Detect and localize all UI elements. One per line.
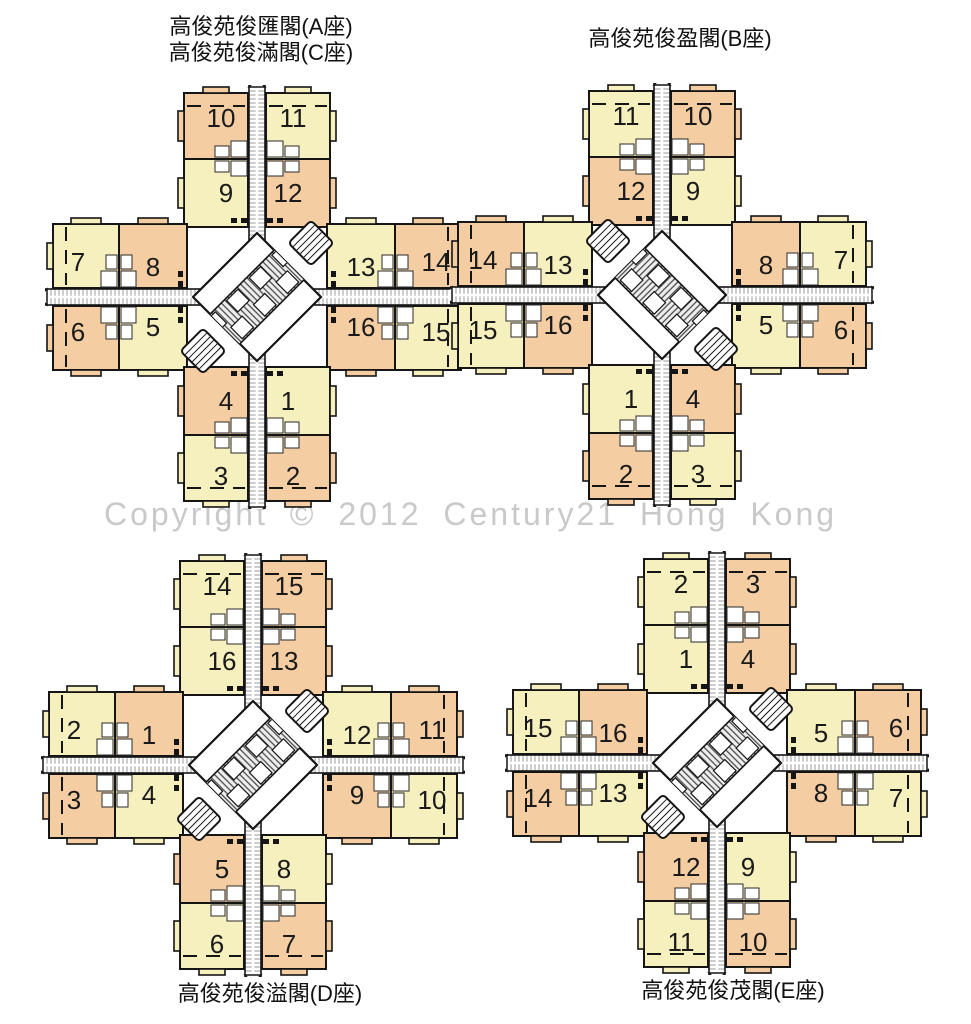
plan-b-unit-14-label: 14 — [469, 245, 498, 275]
plan-d-unit-5-label: 5 — [215, 854, 229, 884]
plan-ac-unit-9-label: 9 — [219, 178, 233, 208]
corridor-end-wedge — [709, 551, 725, 553]
corridor-end-wedge — [245, 553, 261, 555]
plan-e-unit-3-label: 3 — [746, 569, 760, 599]
plan-ac-unit-8-label: 8 — [146, 252, 160, 282]
plan-d-unit-12-label: 12 — [343, 720, 372, 750]
plan-b-unit-1-label: 1 — [624, 384, 638, 414]
corridor-end-wedge — [709, 973, 725, 975]
corridor-end-wedge — [249, 507, 265, 509]
plan-b-unit-12-label: 12 — [617, 176, 646, 206]
floor-plan-b: 12911101316141585761423 — [450, 83, 874, 507]
plan-ac-core — [180, 220, 333, 373]
plan-d-unit-8-label: 8 — [277, 854, 291, 884]
plan-e-unit-12-label: 12 — [672, 852, 701, 882]
plan-b-core — [585, 218, 738, 371]
plan-b-unit-5-label: 5 — [759, 310, 773, 340]
title-tower-d: 高俊苑俊溢閣(D座) — [120, 981, 420, 1007]
plan-b-unit-2-label: 2 — [619, 459, 633, 489]
plan-ac-unit-10-label: 10 — [207, 103, 236, 133]
plan-b-unit-13-label: 13 — [544, 250, 573, 280]
plan-b-unit-3-label: 3 — [691, 459, 705, 489]
plan-b-unit-9-label: 9 — [686, 176, 700, 206]
plan-b-unit-4-label: 4 — [686, 384, 700, 414]
corridor-end-wedge — [245, 975, 261, 977]
plan-e-core — [640, 686, 793, 839]
plan-d-unit-9-label: 9 — [350, 780, 364, 810]
plan-d-unit-11-label: 11 — [419, 715, 446, 745]
plan-ac-unit-12-label: 12 — [274, 178, 303, 208]
plan-d-unit-16-label: 16 — [208, 646, 237, 676]
plan-ac-unit-13-label: 13 — [347, 252, 376, 282]
plan-d-unit-4-label: 4 — [142, 780, 156, 810]
corridor-end-wedge — [927, 755, 929, 771]
plan-e-unit-5-label: 5 — [814, 718, 828, 748]
plan-e-unit-15-label: 15 — [524, 713, 553, 743]
plan-e-unit-6-label: 6 — [889, 713, 903, 743]
plan-d-unit-10-label: 10 — [418, 785, 447, 815]
plan-ac-unit-14-label: 14 — [422, 247, 451, 277]
plan-ac-unit-3-label: 3 — [214, 461, 228, 491]
plan-d-unit-13-label: 13 — [270, 646, 299, 676]
corridor-end-wedge — [654, 83, 670, 85]
plan-d-unit-14-label: 14 — [203, 571, 232, 601]
title-block-ac: 高俊苑俊匯閣(A座) 高俊苑俊滿閣(C座) — [111, 14, 411, 66]
corridor-end-wedge — [249, 85, 265, 87]
plan-ac-unit-16-label: 16 — [347, 312, 376, 342]
plan-e-unit-10-label: 10 — [739, 927, 768, 957]
plan-b-unit-7-label: 7 — [834, 245, 848, 275]
floor-plan-ac: 91210118576131614154132 — [45, 85, 469, 509]
title-tower-e: 高俊苑俊茂閣(E座) — [583, 978, 883, 1004]
floor-plan-sheet: Copyright © 2012 Century21 Hong Kong 高俊苑… — [0, 0, 971, 1024]
corridor-end-wedge — [872, 287, 874, 303]
plan-e-unit-11-label: 11 — [668, 927, 695, 957]
floor-plan-d: 16131415142312911105867 — [41, 553, 465, 977]
plan-e-unit-14-label: 14 — [524, 783, 553, 813]
plan-ac-unit-1-label: 1 — [281, 386, 295, 416]
plan-b-unit-11-label: 11 — [613, 101, 640, 131]
plan-ac-unit-7-label: 7 — [71, 247, 85, 277]
plan-b-unit-16-label: 16 — [544, 310, 573, 340]
plan-e-unit-13-label: 13 — [599, 778, 628, 808]
title-tower-c: 高俊苑俊滿閣(C座) — [111, 40, 411, 66]
plan-d-unit-15-label: 15 — [275, 571, 304, 601]
plan-d-unit-7-label: 7 — [282, 929, 296, 959]
plan-e-unit-16-label: 16 — [599, 718, 628, 748]
plan-e-unit-9-label: 9 — [741, 852, 755, 882]
corridor-end-wedge — [505, 755, 507, 771]
plan-d-unit-1-label: 1 — [142, 720, 156, 750]
plan-ac-unit-5-label: 5 — [146, 312, 160, 342]
plan-e-unit-4-label: 4 — [741, 644, 755, 674]
plan-ac-unit-4-label: 4 — [219, 386, 233, 416]
corridor-end-wedge — [654, 505, 670, 507]
plan-d-core — [176, 688, 329, 841]
floor-plan-e: 14231613151458671291110 — [505, 551, 929, 975]
plan-e-unit-1-label: 1 — [679, 644, 693, 674]
corridor-end-wedge — [463, 757, 465, 773]
plan-e-unit-2-label: 2 — [674, 569, 688, 599]
plan-e-unit-8-label: 8 — [814, 778, 828, 808]
plan-ac-unit-2-label: 2 — [286, 461, 300, 491]
plan-ac-unit-11-label: 11 — [280, 103, 307, 133]
plan-e-unit-7-label: 7 — [889, 783, 903, 813]
plan-ac-unit-15-label: 15 — [422, 317, 451, 347]
title-tower-b: 高俊苑俊盈閣(B座) — [530, 26, 830, 52]
plan-b-unit-6-label: 6 — [834, 315, 848, 345]
plan-d-unit-2-label: 2 — [67, 715, 81, 745]
corridor-end-wedge — [45, 289, 47, 305]
plan-d-unit-6-label: 6 — [210, 929, 224, 959]
corridor-end-wedge — [41, 757, 43, 773]
plan-d-unit-3-label: 3 — [67, 785, 81, 815]
plan-b-unit-10-label: 10 — [684, 101, 713, 131]
plan-ac-unit-6-label: 6 — [71, 317, 85, 347]
title-tower-a: 高俊苑俊匯閣(A座) — [111, 14, 411, 40]
plan-b-unit-15-label: 15 — [469, 315, 498, 345]
plan-b-unit-8-label: 8 — [759, 250, 773, 280]
corridor-end-wedge — [450, 287, 452, 303]
